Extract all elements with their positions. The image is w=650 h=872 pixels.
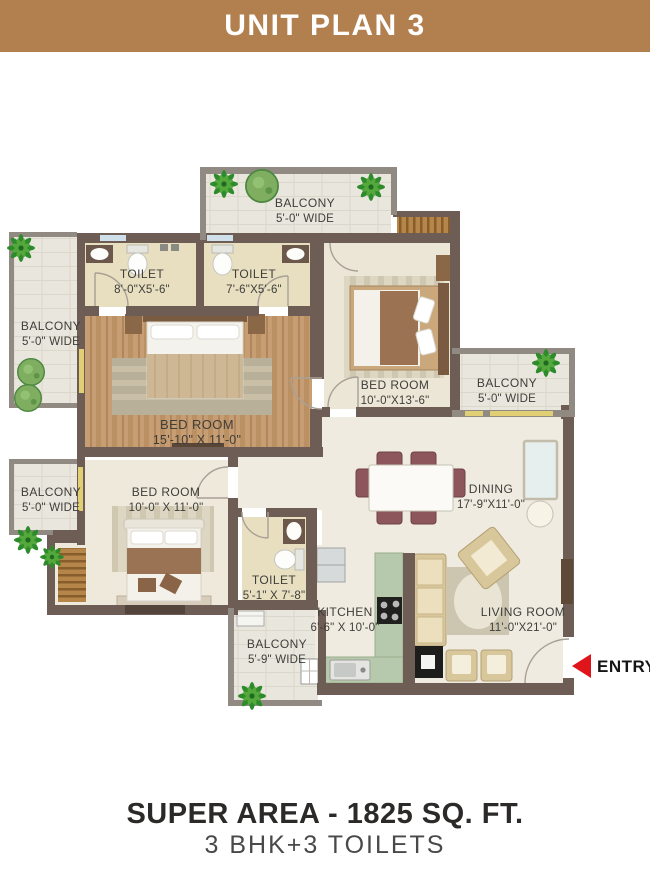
room-name: BED ROOM [129,485,204,500]
room-dims: 5'-0" WIDE [275,211,335,227]
room-label-toilet-3: TOILET 5'-1" X 7'-8" [243,573,305,604]
room-label-balcony-bottom: BALCONY 5'-9" WIDE [247,637,307,668]
room-name: BALCONY [21,319,81,334]
room-label-balcony-right: BALCONY 5'-0" WIDE [477,376,537,407]
entry-label: ENTRY [597,657,650,677]
room-name: BED ROOM [361,378,430,393]
room-label-toilet-1: TOILET 8'-0"X5'-6" [114,267,170,298]
room-name: LIVING ROOM [481,605,565,620]
room-label-balcony-left-top: BALCONY 5'-0" WIDE [21,319,81,350]
room-dims: 10'-0" X 11'-0" [129,500,204,516]
room-name: BALCONY [247,637,307,652]
room-label-bedroom-right: BED ROOM 10'-0"X13'-6" [361,378,430,409]
room-dims: 7'-6"X5'-6" [226,282,282,298]
configuration-text: 3 BHK+3 TOILETS [0,831,650,860]
room-name: BALCONY [21,485,81,500]
room-dims: 5'-1" X 7'-8" [243,588,305,604]
room-dims: 11'-0"X21'-0" [481,620,565,636]
room-label-balcony-left-bottom: BALCONY 5'-0" WIDE [21,485,81,516]
room-dims: 10'-0"X13'-6" [361,393,430,409]
title-banner: UNIT PLAN 3 [0,0,650,52]
room-dims: 8'-0"X5'-6" [114,282,170,298]
room-label-balcony-top: BALCONY 5'-0" WIDE [275,196,335,227]
entry-arrow-icon [572,654,591,678]
room-name: BALCONY [477,376,537,391]
room-dims: 5'-0" WIDE [477,391,537,407]
room-dims: 15'-10" X 11'-0" [153,432,241,448]
room-dims: 5'-9" WIDE [247,652,307,668]
room-name: BED ROOM [153,417,241,432]
room-label-bedroom-lower: BED ROOM 10'-0" X 11'-0" [129,485,204,516]
room-dims: 5'-0" WIDE [21,334,81,350]
room-name: TOILET [114,267,170,282]
room-dims: 6'-6" X 10'-0" [310,620,379,636]
unit-plan-page: UNIT PLAN 3 [0,0,650,872]
room-label-bedroom-master: BED ROOM 15'-10" X 11'-0" [153,417,241,448]
room-dims: 17'-9"X11'-0" [457,497,525,513]
room-label-kitchen: KITCHEN 6'-6" X 10'-0" [310,605,379,636]
room-name: TOILET [243,573,305,588]
room-name: DINING [457,482,525,497]
super-area-text: SUPER AREA - 1825 SQ. FT. [0,798,650,831]
page-title: UNIT PLAN 3 [224,9,426,43]
room-name: TOILET [226,267,282,282]
room-dims: 5'-0" WIDE [21,500,81,516]
room-label-living: LIVING ROOM 11'-0"X21'-0" [481,605,565,636]
room-label-toilet-2: TOILET 7'-6"X5'-6" [226,267,282,298]
room-name: KITCHEN [310,605,379,620]
room-label-dining: DINING 17'-9"X11'-0" [457,482,525,513]
room-name: BALCONY [275,196,335,211]
